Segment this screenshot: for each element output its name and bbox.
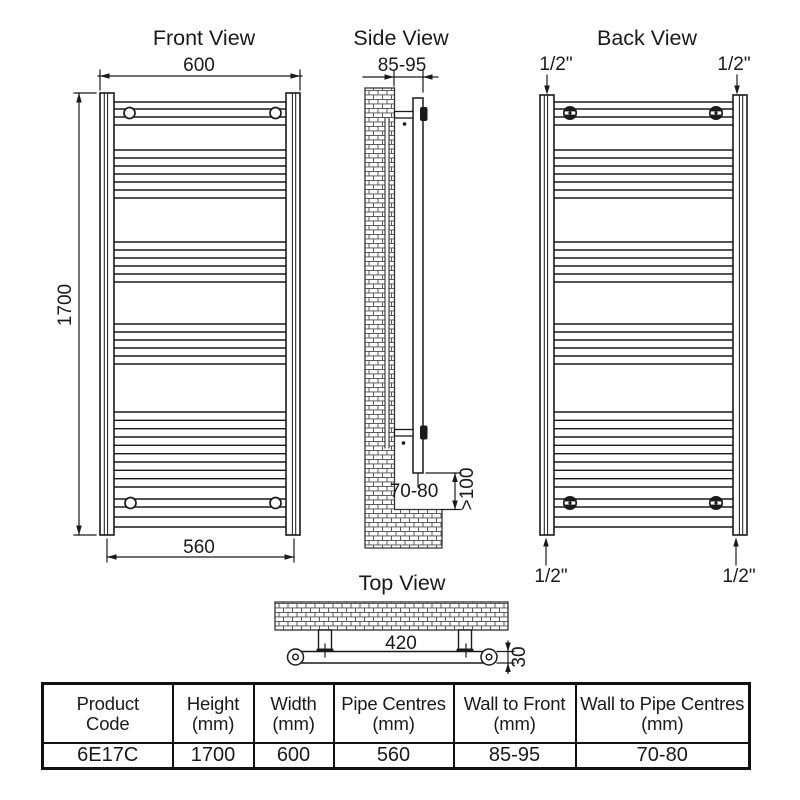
header-line: Width (255, 694, 333, 714)
front-view-title: Front View (153, 26, 256, 50)
header-wall-to-pipe-centres: Wall to Pipe Centres (mm) (576, 684, 750, 744)
back-radiator-bars (555, 102, 733, 527)
specification-table: Product Code Height (mm) Width (mm) Pipe… (41, 682, 751, 770)
back-conn-size-bottom-right: 1/2" (722, 566, 755, 587)
back-radiator-rails (540, 95, 747, 535)
arrow-up (76, 93, 82, 103)
front-bracket-holes (124, 108, 281, 509)
top-view-title: Top View (359, 571, 446, 595)
header-wall-to-front: Wall to Front (mm) (454, 684, 576, 744)
wall-section (365, 88, 442, 548)
arrow-left (100, 73, 110, 79)
back-view-title: Back View (597, 26, 697, 50)
header-line: (mm) (577, 714, 749, 734)
back-conn-leaders-bottom (546, 541, 736, 565)
technical-drawing-page: Front View 600 1700 (0, 0, 800, 800)
value-pipe-centres: 560 (334, 743, 454, 769)
side-view: Side View 85-95 (353, 26, 478, 548)
header-line: Product (44, 694, 172, 714)
front-width-dim-label: 600 (183, 55, 215, 76)
back-screw-fittings (563, 107, 723, 509)
top-view: Top View 420 30 (275, 571, 530, 674)
header-pipe-centres: Pipe Centres (mm) (334, 684, 454, 744)
header-line: Wall to Pipe Centres (577, 694, 749, 714)
header-line: Wall to Front (455, 694, 575, 714)
back-view: Back View 1/2" 1/2" 1/2" 1/2" (534, 26, 755, 587)
front-radiator-rails (100, 93, 300, 535)
back-conn-size-top-left: 1/2" (539, 54, 572, 75)
header-line: (mm) (255, 714, 333, 734)
header-line: (mm) (455, 714, 575, 734)
arrow-down (734, 86, 740, 95)
header-line: (mm) (335, 714, 453, 734)
front-view: Front View 600 1700 (55, 26, 302, 562)
side-floor-clearance-dim-label: >100 (457, 468, 478, 511)
side-view-title: Side View (353, 26, 449, 50)
back-conn-size-bottom-left: 1/2" (534, 566, 567, 587)
spec-table-header-row: Product Code Height (mm) Width (mm) Pipe… (43, 684, 750, 744)
arrow-right (291, 73, 301, 79)
header-product-code: Product Code (43, 684, 173, 744)
header-height: Height (mm) (173, 684, 254, 744)
value-width: 600 (254, 743, 334, 769)
arrow-right (285, 554, 295, 560)
back-conn-size-top-right: 1/2" (717, 54, 750, 75)
back-conn-leaders-top (547, 75, 737, 92)
wall-section-top (275, 602, 508, 630)
header-line: Pipe Centres (335, 694, 453, 714)
top-bracket-centres-dim-label: 420 (385, 633, 417, 654)
header-width: Width (mm) (254, 684, 334, 744)
value-wall-to-pipe-centres: 70-80 (576, 743, 750, 769)
side-wall-to-front-dim-label: 85-95 (378, 55, 427, 76)
wall-pipe (385, 118, 390, 448)
side-wall-to-pipe-dim-label: 70-80 (390, 481, 439, 502)
arrow-left (107, 554, 117, 560)
header-line: Height (174, 694, 253, 714)
value-height: 1700 (173, 743, 254, 769)
side-radiator-profile (413, 98, 423, 473)
arrow-up (733, 538, 739, 547)
front-radiator-bars (115, 102, 286, 527)
header-line: (mm) (174, 714, 253, 734)
front-height-dim-label: 1700 (55, 284, 76, 326)
header-line: Code (44, 714, 172, 734)
value-product-code: 6E17C (43, 743, 173, 769)
front-pipe-centres-dim-label: 560 (183, 537, 215, 558)
spec-table-value-row: 6E17C 1700 600 560 85-95 70-80 (43, 743, 750, 769)
arrow-up (543, 538, 549, 547)
arrow-down (544, 86, 550, 95)
arrow-down (76, 526, 82, 536)
value-wall-to-front: 85-95 (454, 743, 576, 769)
radiator-technical-drawing: Front View 600 1700 (0, 0, 800, 678)
top-depth-dim-label: 30 (509, 646, 530, 667)
front-height-dim-lines (74, 93, 96, 535)
